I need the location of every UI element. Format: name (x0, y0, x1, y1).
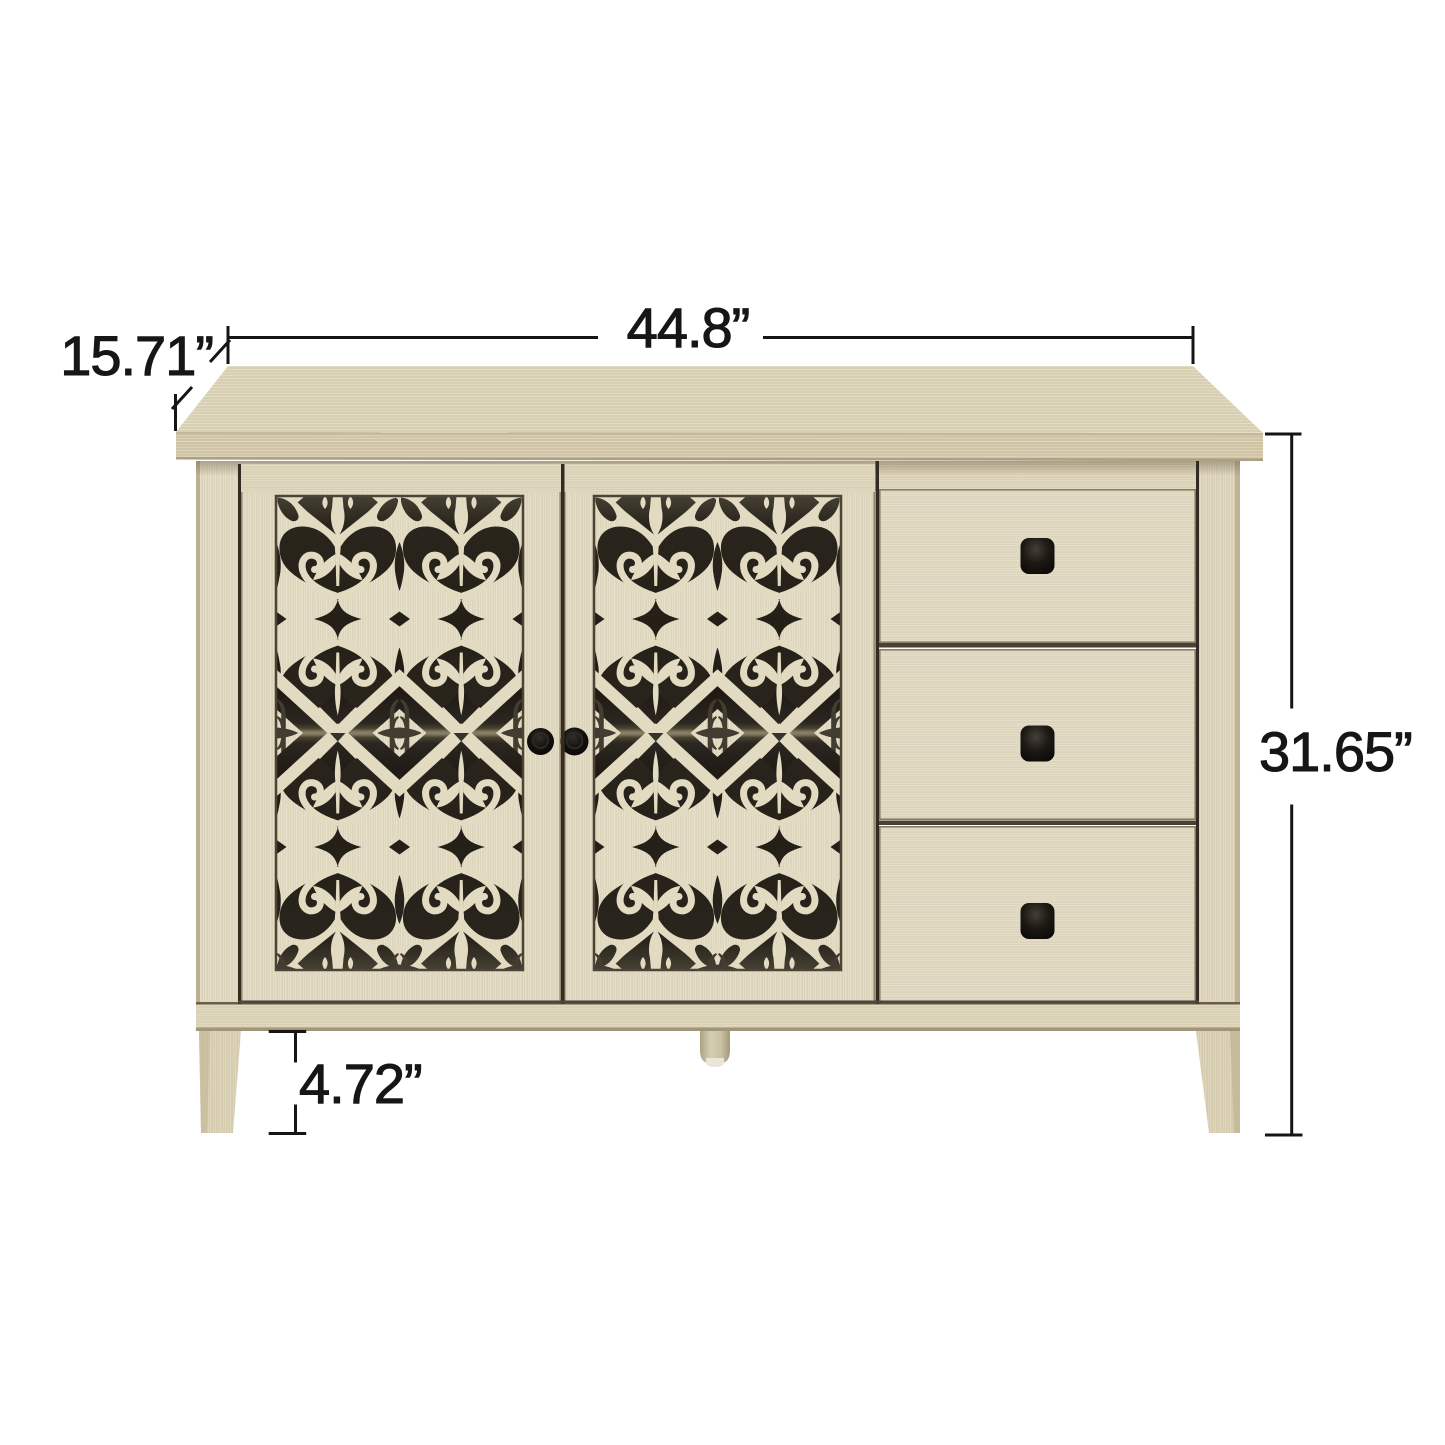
svg-text:4.72”: 4.72” (299, 1052, 422, 1115)
svg-text:15.71”: 15.71” (60, 324, 213, 387)
svg-text:44.8”: 44.8” (627, 296, 750, 359)
svg-text:31.65”: 31.65” (1259, 720, 1412, 783)
